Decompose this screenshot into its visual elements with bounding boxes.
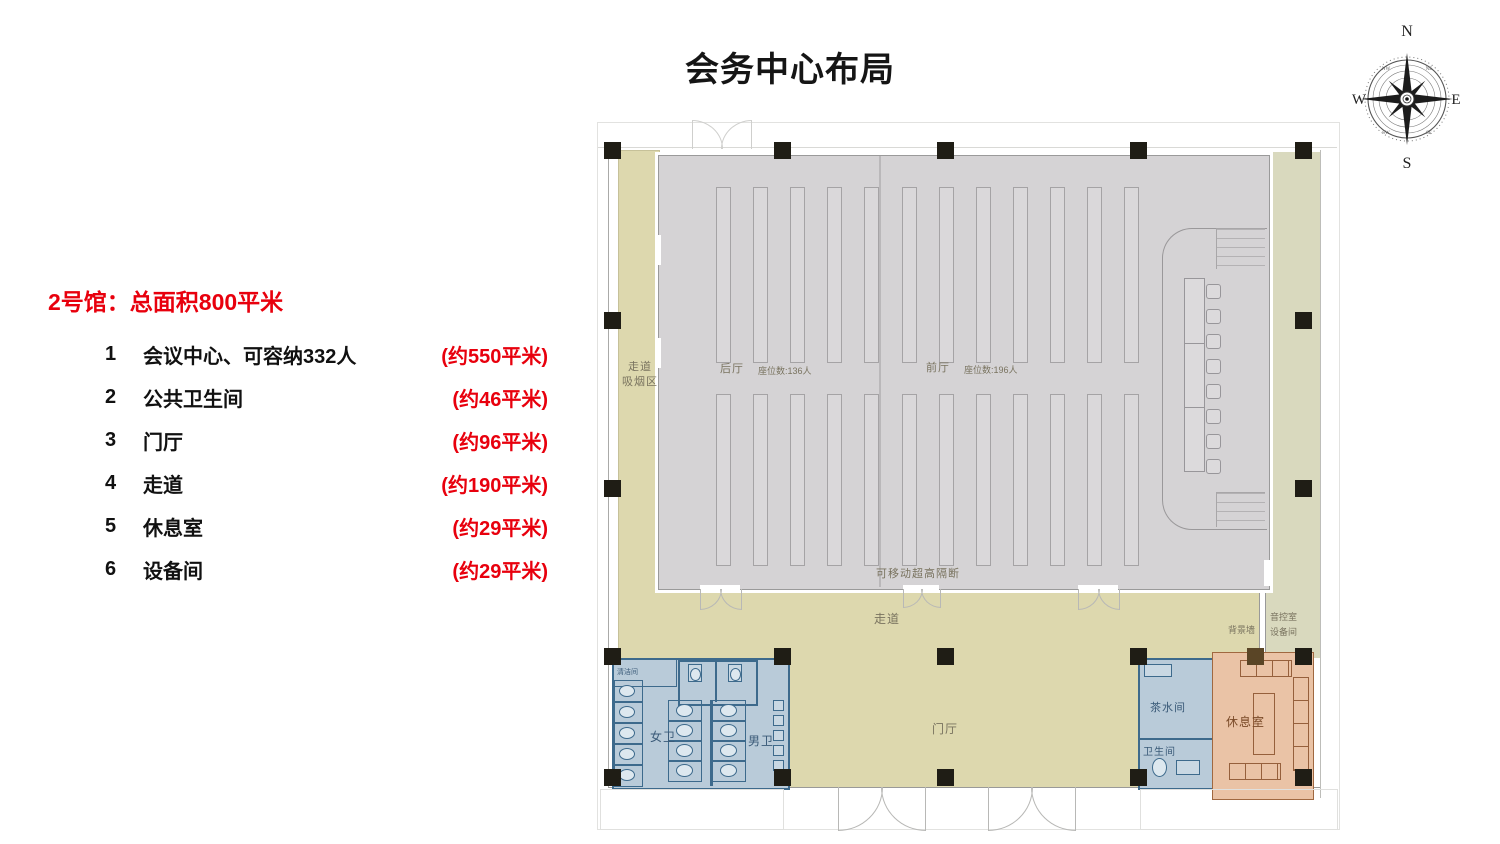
lobby-area — [786, 658, 1138, 787]
table-row-bar — [902, 394, 917, 566]
front-hall-seats: 座位数:196人 — [964, 363, 1018, 376]
urinal-icon — [773, 730, 784, 741]
table-row-bar — [939, 394, 954, 566]
sink-icon — [1176, 760, 1200, 775]
toilet-fixture-icon — [619, 769, 635, 781]
toilet-fixture-icon — [619, 748, 635, 760]
lobby-label: 门厅 — [932, 720, 958, 737]
column-icon — [937, 648, 954, 665]
toilet-fixture-icon — [619, 727, 635, 739]
rostrum-chair-icon — [1206, 409, 1221, 424]
urinal-icon — [773, 745, 784, 756]
column-icon — [1295, 648, 1312, 665]
background-wall-label: 背景墙 — [1228, 623, 1255, 636]
stairs-icon — [1216, 492, 1265, 527]
corridor-label: 走道 — [874, 610, 900, 627]
back-hall-seats: 座位数:136人 — [758, 364, 812, 377]
women-wc-label: 女卫 — [650, 728, 676, 745]
toilet-fixture-icon — [676, 724, 693, 737]
table-row-bar — [1013, 394, 1028, 566]
column-icon — [604, 648, 621, 665]
rostrum-chair-icon — [1206, 334, 1221, 349]
column-icon — [1130, 142, 1147, 159]
slide: 会务中心布局 N S W E NW NE SW SE — [0, 0, 1500, 844]
toilet-fixture-icon — [676, 764, 693, 777]
rostrum-chair-icon — [1206, 434, 1221, 449]
table-row-bar — [976, 394, 991, 566]
column-icon — [1130, 769, 1147, 786]
table-row-bar — [976, 187, 991, 363]
door-opening — [1264, 560, 1270, 586]
wc-room-divider — [715, 660, 717, 702]
equipment-room-label: 设备间 — [1270, 625, 1297, 638]
column-icon — [1130, 648, 1147, 665]
door-opening — [655, 235, 661, 265]
sound-room-label: 音控室 — [1270, 610, 1297, 623]
toilet-fixture-icon — [730, 668, 741, 681]
rostrum-chair-icon — [1206, 359, 1221, 374]
movable-partition — [879, 156, 881, 587]
urinal-icon — [773, 700, 784, 711]
column-icon — [774, 769, 791, 786]
sofa-icon — [1293, 677, 1309, 771]
porch-outline — [600, 789, 784, 830]
tea-counter — [1144, 664, 1172, 677]
urinal-icon — [773, 715, 784, 726]
table-row-bar — [1050, 187, 1065, 363]
table-row-bar — [1124, 187, 1139, 363]
porch-outline — [1140, 789, 1338, 830]
toilet-fixture-icon — [720, 724, 737, 737]
toilet-fixture-icon — [720, 744, 737, 757]
column-icon — [1247, 648, 1264, 665]
column-icon — [774, 142, 791, 159]
men-wc-label: 男卫 — [748, 732, 774, 749]
outer-wall-right — [1320, 150, 1321, 798]
column-icon — [1295, 480, 1312, 497]
column-icon — [604, 312, 621, 329]
toilet-fixture-icon — [619, 685, 635, 697]
rostrum-chair-icon — [1206, 459, 1221, 474]
head-table — [1184, 278, 1205, 472]
column-icon — [937, 142, 954, 159]
smoking-corridor-area — [618, 150, 660, 662]
table-row-bar — [1013, 187, 1028, 363]
toilet-fixture-icon — [720, 704, 737, 717]
column-icon — [937, 769, 954, 786]
table-row-bar — [1087, 394, 1102, 566]
rostrum-chair-icon — [1206, 284, 1221, 299]
toilet-fixture-icon — [676, 704, 693, 717]
table-row-bar — [864, 394, 879, 566]
rostrum-outline — [1162, 228, 1267, 530]
column-icon — [604, 142, 621, 159]
sofa-icon — [1229, 763, 1281, 780]
smoking-label-line2: 吸烟区 — [622, 375, 658, 390]
tea-room-label: 茶水间 — [1150, 699, 1186, 715]
rostrum-chair-icon — [1206, 384, 1221, 399]
stairs-icon — [1216, 228, 1265, 269]
corridor-label-line1: 走道 — [622, 360, 658, 375]
toilet-fixture-icon — [1152, 758, 1167, 777]
column-icon — [774, 648, 791, 665]
table-row-bar — [753, 394, 768, 566]
table-row-bar — [716, 187, 731, 363]
table-row-bar — [864, 187, 879, 363]
partition-label: 可移动超高隔断 — [876, 565, 960, 581]
smoking-corridor-label: 走道 吸烟区 — [622, 360, 658, 390]
back-hall-label: 后厅 — [720, 360, 744, 376]
column-icon — [1295, 769, 1312, 786]
toilet-fixture-icon — [690, 668, 701, 681]
front-hall-label: 前厅 — [926, 359, 950, 375]
table-row-bar — [716, 394, 731, 566]
right-strip-area — [1272, 152, 1320, 590]
column-icon — [604, 769, 621, 786]
toilet-fixture-icon — [676, 744, 693, 757]
toilet-fixture-icon — [619, 706, 635, 718]
rostrum-chair-icon — [1206, 309, 1221, 324]
column-icon — [1295, 142, 1312, 159]
outer-wall-left — [608, 150, 609, 787]
lounge-label: 休息室 — [1226, 713, 1265, 730]
table-row-bar — [1050, 394, 1065, 566]
toilet-room-label: 卫生间 — [1143, 743, 1176, 758]
toilet-fixture-icon — [720, 764, 737, 777]
table-row-bar — [1087, 187, 1102, 363]
table-row-bar — [939, 187, 954, 363]
cleaning-room-label: 清洁间 — [617, 667, 638, 677]
corridor-area — [658, 588, 1262, 658]
column-icon — [1295, 312, 1312, 329]
table-row-bar — [790, 187, 805, 363]
table-row-bar — [902, 187, 917, 363]
table-row-bar — [827, 187, 842, 363]
table-row-bar — [790, 394, 805, 566]
column-icon — [604, 480, 621, 497]
table-row-bar — [1124, 394, 1139, 566]
table-row-bar — [753, 187, 768, 363]
table-row-bar — [827, 394, 842, 566]
gender-divider-wall — [710, 700, 713, 786]
floor-plan: 走道 吸烟区 后厅 座位数:136人 前厅 座位数:196人 可移动超高隔断 走… — [0, 0, 1500, 844]
